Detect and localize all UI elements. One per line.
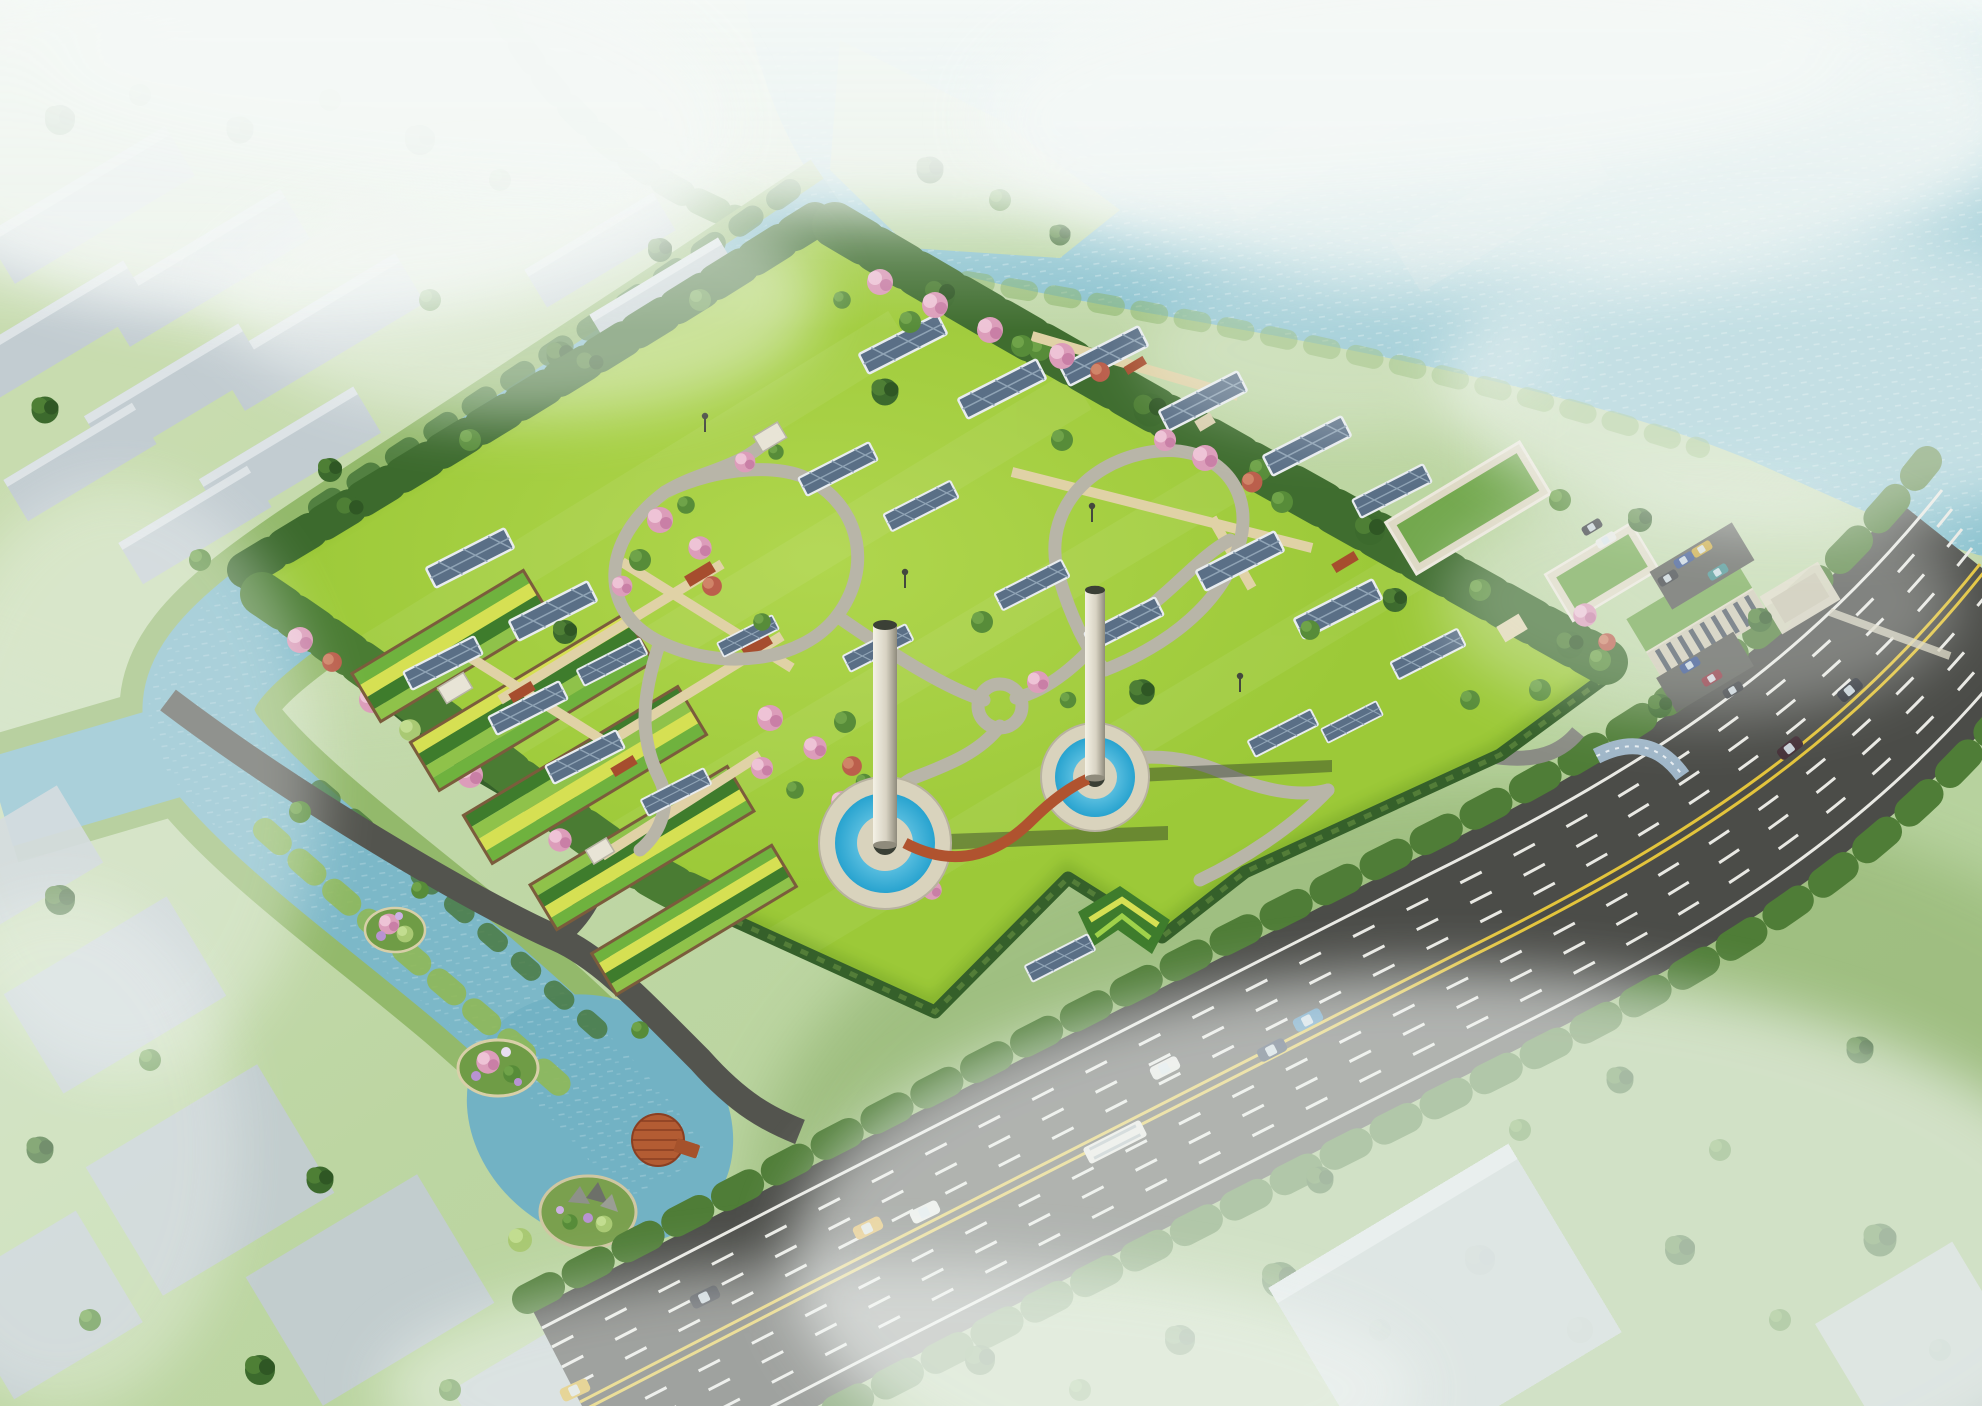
aerial-rendering-stage [0, 0, 1982, 1406]
chimney-tower-2 [1085, 586, 1105, 782]
chimney-tower-1 [873, 620, 897, 849]
island-2 [458, 1040, 538, 1096]
aerial-rendering [0, 0, 1982, 1406]
island-1 [365, 908, 425, 952]
